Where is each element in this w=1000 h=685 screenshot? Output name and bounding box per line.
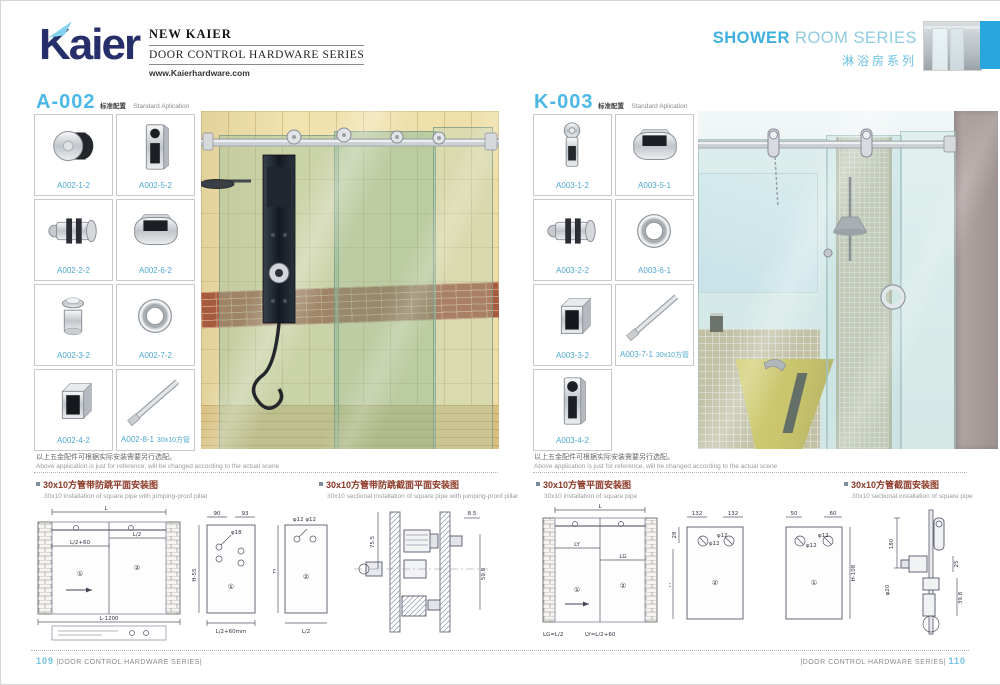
product-cell: A003-4-2	[533, 369, 612, 451]
dim-label: L/2+60mm	[216, 629, 247, 635]
section-note-en: Standard Aplication	[631, 103, 687, 110]
panel-label: ①	[811, 579, 817, 587]
dim-label: 93	[242, 511, 249, 517]
product-code: A002-6-2	[117, 266, 194, 275]
dim-label: L	[104, 506, 108, 512]
kaier-logo: Kaier	[39, 17, 149, 73]
dim-label: φ20	[885, 584, 891, 595]
product-cell: A003-7-130x10方管	[615, 284, 694, 366]
footer-left: 109 |DOOR CONTROL HARDWARE SERIES|	[36, 656, 202, 666]
brand-block: NEW KAIER DOOR CONTROL HARDWARE SERIES w…	[149, 27, 364, 78]
footer-series-text: |DOOR CONTROL HARDWARE SERIES|	[56, 659, 202, 666]
dim-label: 60	[830, 511, 837, 517]
dim-label: H	[669, 583, 673, 587]
series-title-en-rest: ROOM SERIES	[790, 29, 917, 47]
thumb-glass-pane	[932, 28, 948, 71]
product-code: A003-3-2	[534, 351, 611, 360]
product-code: A002-5-2	[117, 181, 194, 190]
product-image-block-with-hole	[117, 117, 194, 175]
dim-label: 75.5	[370, 535, 376, 548]
product-image-square-pipe	[117, 372, 194, 430]
caption-en: 30x10 sectional installation of square p…	[852, 493, 999, 500]
product-note: 30x10方管	[157, 437, 190, 444]
hole-label: φ12	[806, 543, 817, 549]
formula-label: LY=L/2+60	[585, 632, 616, 638]
dim-label: 50	[791, 511, 798, 517]
brand-title: NEW KAIER	[149, 27, 364, 46]
product-cell: A002-4-2	[34, 369, 113, 451]
hole-label: φ12 φ12	[293, 517, 316, 523]
drawing-panel-a-k003: 132 132 28 φ12 φ12 ② H	[669, 509, 757, 639]
product-image-square-tube-block	[35, 372, 112, 430]
drawing-elevation-a002: L L/2+60 L/2 ① ② L-1200	[36, 504, 184, 644]
dim-label: L/2	[133, 532, 141, 538]
product-cell: A003-1-2	[533, 114, 612, 196]
photo-fixtures-overlay	[201, 111, 499, 449]
dim-label: 132	[692, 511, 703, 517]
caption-cn: 30x10方管截面安装图	[844, 478, 999, 491]
product-cell: A002-6-2	[116, 199, 195, 281]
drawing-elevation-k003: L LY LG ① ② LG=L/2 LY=L/2+60	[541, 504, 661, 644]
product-cell: A003-2-2	[533, 199, 612, 281]
dim-label: 28	[672, 531, 678, 538]
disclaimer-cn: 以上五金配件可根据实际安装需要另行选配。	[534, 452, 954, 462]
drawing-panel-b-k003: 50 60 φ12 φ12 ① H-108	[776, 509, 860, 639]
product-code-text: A002-8-1	[121, 435, 154, 444]
section-note-en: Standard Aplication	[133, 103, 189, 110]
application-photo-a002	[201, 111, 499, 449]
dim-label: 132	[728, 511, 739, 517]
dim-label: L-1200	[100, 616, 119, 622]
product-image-square-pipe	[616, 287, 693, 345]
caption-en: 30x10 installation of square pipe	[544, 493, 766, 500]
drawing-caption-1-a002: 30x10方管带防跳平面安装图 30x10 installation of sq…	[36, 478, 301, 500]
caption-cn: 30x10方管带防跳截面平面安装图	[319, 478, 519, 491]
caption-cn-text: 30x10方管带防跳截面平面安装图	[326, 480, 459, 490]
product-code: A003-6-1	[616, 266, 693, 275]
series-title-cn: 淋浴房系列	[713, 52, 917, 69]
product-cell: A002-5-2	[116, 114, 195, 196]
product-code: A003-1-2	[534, 181, 611, 190]
product-code: A003-7-130x10方管	[616, 350, 693, 360]
panel-label: ②	[134, 564, 140, 572]
dim-label: L/2+60	[70, 540, 91, 546]
dim-label: 180	[889, 538, 895, 549]
dim-label: 90	[214, 511, 221, 517]
page-number: 110	[948, 656, 966, 666]
product-code: A003-4-2	[534, 436, 611, 445]
hole-label: φ12	[709, 541, 720, 547]
product-image-ring-handle	[117, 287, 194, 345]
product-cell: A003-6-1	[615, 199, 694, 281]
caption-en: 30x10 installation of square pipe with j…	[44, 493, 301, 500]
product-code: A003-5-1	[616, 181, 693, 190]
catalog-spread: Kaier NEW KAIER DOOR CONTROL HARDWARE SE…	[0, 0, 1000, 685]
product-image-block-with-hole	[534, 372, 611, 430]
panel-label: ①	[77, 570, 83, 578]
drawing-panel-a-a002: 90 93 φ18 ① H-55 L/2+60mm	[191, 509, 267, 639]
product-cell: A002-1-2	[34, 114, 113, 196]
product-cell: A003-5-1	[615, 114, 694, 196]
product-code: A002-7-2	[117, 351, 194, 360]
product-image-glass-clamp-round	[35, 117, 112, 175]
dim-label: L	[598, 504, 602, 510]
series-title-en-bold: SHOWER	[713, 29, 790, 47]
dim-label: LY	[574, 542, 580, 548]
product-image-ring-handle	[616, 202, 693, 260]
dim-label: 8.5	[468, 511, 477, 517]
product-code: A002-1-2	[35, 181, 112, 190]
product-cell: A002-8-130x10方管	[116, 369, 195, 451]
caption-bullet-icon	[844, 482, 848, 486]
header-shower-thumbnail	[923, 21, 982, 71]
caption-cn: 30x10方管平面安装图	[536, 478, 766, 491]
disclaimer-k003: 以上五金配件可根据实际安装需要另行选配。 Above application i…	[534, 452, 954, 470]
hole-label: φ12	[818, 533, 829, 539]
page-number: 109	[36, 656, 54, 666]
product-code: A002-4-2	[35, 436, 112, 445]
product-note: 30x10方管	[656, 352, 689, 359]
product-cell: A002-3-2	[34, 284, 113, 366]
footer-right: |DOOR CONTROL HARDWARE SERIES| 110	[800, 656, 966, 666]
product-cell: A002-2-2	[34, 199, 113, 281]
formula-label: LG=L/2	[543, 632, 563, 638]
product-code: A002-8-130x10方管	[117, 435, 194, 445]
section-note-cn: 标准配置	[100, 103, 126, 110]
section-note-cn: 标准配置	[598, 103, 624, 110]
product-image-clamp	[616, 117, 693, 175]
disclaimer-en: Above application is just for reference,…	[36, 463, 456, 470]
drawing-panel-b-a002: φ12 φ12 ② H L/2	[273, 509, 335, 639]
product-cell: A002-7-2	[116, 284, 195, 366]
product-code: A003-2-2	[534, 266, 611, 275]
caption-cn: 30x10方管带防跳平面安装图	[36, 478, 301, 491]
dim-label: H	[273, 569, 278, 573]
divider-dotted	[533, 472, 967, 473]
drawing-caption-2-a002: 30x10方管带防跳截面平面安装图 30x10 sectional instal…	[319, 478, 519, 500]
product-image-knob	[35, 287, 112, 345]
caption-bullet-icon	[319, 482, 323, 486]
product-code-text: A003-7-1	[620, 350, 653, 359]
panel-label: ②	[712, 579, 718, 587]
brand-subtitle: DOOR CONTROL HARDWARE SERIES	[149, 46, 364, 65]
dim-label: 59.8	[481, 567, 487, 580]
hole-label: φ18	[231, 530, 242, 536]
caption-cn-text: 30x10方管截面安装图	[851, 480, 939, 490]
product-image-hanger-roller	[534, 117, 611, 175]
caption-bullet-icon	[36, 482, 40, 486]
panel-label: ②	[620, 582, 626, 590]
section-code-a002: A-002	[36, 91, 95, 113]
application-photo-k003	[698, 111, 998, 449]
section-header-a002: A-002 标准配置 Standard Aplication	[36, 91, 189, 114]
product-code: A002-3-2	[35, 351, 112, 360]
product-code: A002-2-2	[35, 266, 112, 275]
panel-label: ②	[303, 573, 309, 581]
drawing-caption-1-k003: 30x10方管平面安装图 30x10 installation of squar…	[536, 478, 766, 500]
footer-series-text: |DOOR CONTROL HARDWARE SERIES|	[800, 659, 946, 666]
caption-bullet-icon	[536, 482, 540, 486]
product-image-square-tube-block	[534, 287, 611, 345]
product-grid-k003: A003-1-2 A003-5-1 A003-2-2	[533, 114, 694, 451]
dim-label: H-108	[851, 564, 857, 581]
product-image-clamp	[117, 202, 194, 260]
series-title-block: SHOWER ROOM SERIES 淋浴房系列	[713, 29, 917, 69]
dim-label: LG	[619, 554, 626, 560]
product-cell: A003-3-2	[533, 284, 612, 366]
drawing-caption-2-k003: 30x10方管截面安装图 30x10 sectional installatio…	[844, 478, 999, 500]
disclaimer-en: Above application is just for reference,…	[534, 463, 954, 470]
product-image-roller	[35, 202, 112, 260]
panel-label: ①	[228, 583, 234, 591]
brand-website: www.Kaierhardware.com	[149, 65, 364, 78]
dim-label: 39.8	[958, 591, 964, 604]
panel-label: ①	[574, 586, 580, 594]
dim-label: L/2	[302, 629, 310, 635]
section-header-k003: K-003 标准配置 Standard Aplication	[534, 91, 687, 114]
footer-divider	[31, 650, 969, 651]
header-accent-bar	[980, 21, 1000, 69]
divider-dotted	[34, 472, 498, 473]
dim-label: 25	[954, 560, 960, 567]
caption-cn-text: 30x10方管平面安装图	[543, 480, 631, 490]
thumb-glass-pane2	[950, 28, 964, 71]
product-grid-a002: A002-1-2 A002-5-2 A002-2-2	[34, 114, 195, 451]
drawing-section-k003: 180 φ20 25 39.8	[873, 504, 973, 644]
drawing-section-a002: 75.5 8.5 59.8	[346, 504, 496, 644]
series-title-en: SHOWER ROOM SERIES	[713, 29, 917, 48]
photo-fixtures-overlay	[698, 111, 998, 449]
product-image-roller	[534, 202, 611, 260]
caption-en: 30x10 sectional installation of square p…	[327, 493, 519, 500]
hole-label: φ12	[717, 533, 728, 539]
caption-cn-text: 30x10方管带防跳平面安装图	[43, 480, 158, 490]
logo-text: Kaier	[39, 17, 149, 73]
section-code-k003: K-003	[534, 91, 593, 113]
disclaimer-cn: 以上五金配件可根据实际安装需要另行选配。	[36, 452, 456, 462]
disclaimer-a002: 以上五金配件可根据实际安装需要另行选配。 Above application i…	[36, 452, 456, 470]
dim-label: H-55	[192, 568, 198, 582]
